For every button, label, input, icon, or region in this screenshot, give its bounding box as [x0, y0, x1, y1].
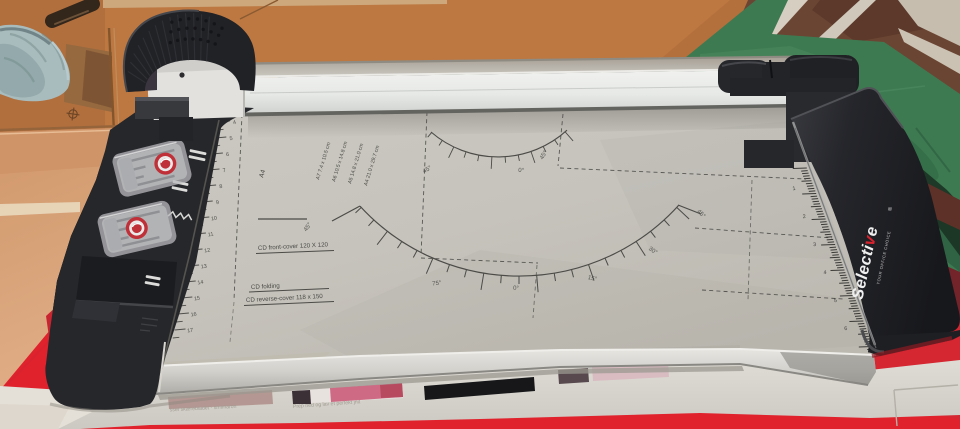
svg-text:13: 13 — [200, 264, 207, 271]
svg-text:11: 11 — [207, 232, 214, 239]
svg-text:12: 12 — [204, 248, 211, 255]
svg-text:10: 10 — [211, 216, 218, 223]
svg-text:16: 16 — [190, 312, 197, 319]
svg-text:14: 14 — [197, 280, 204, 287]
svg-text:15: 15 — [194, 296, 201, 303]
svg-text:17: 17 — [187, 328, 194, 335]
svg-text:0°: 0° — [513, 286, 519, 292]
